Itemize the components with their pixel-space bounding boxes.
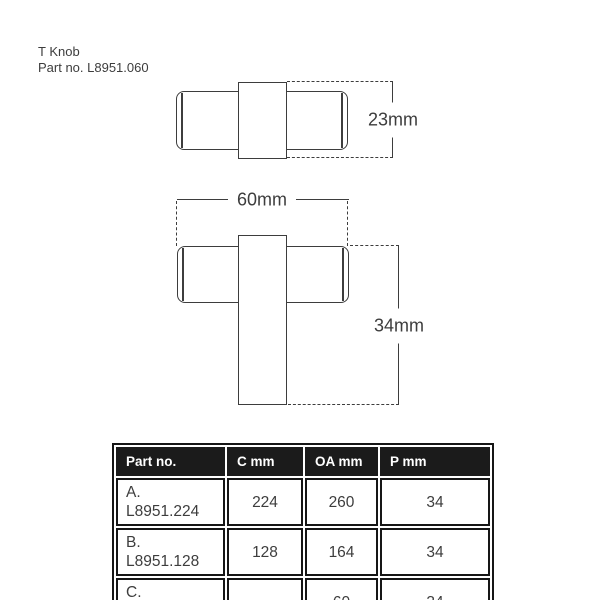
cell-part-no: C. L8951.060 bbox=[116, 578, 225, 600]
cell-part-no: B. L8951.128 bbox=[116, 528, 225, 576]
cell-oa-mm: 260 bbox=[305, 478, 378, 526]
col-header-c-mm: C mm bbox=[227, 447, 303, 476]
col-header-part-no: Part no. bbox=[116, 447, 225, 476]
cell-oa-mm: 164 bbox=[305, 528, 378, 576]
cell-p-mm: 34 bbox=[380, 478, 490, 526]
cell-part-no: A. L8951.224 bbox=[116, 478, 225, 526]
table-header-row: Part no. C mm OA mm P mm bbox=[116, 447, 490, 476]
product-title: T Knob bbox=[38, 44, 149, 60]
cell-c-mm: - bbox=[227, 578, 303, 600]
knob-post-front-view bbox=[238, 235, 287, 405]
col-header-oa-mm: OA mm bbox=[305, 447, 378, 476]
table-row: B. L8951.128 128 164 34 bbox=[116, 528, 490, 576]
knob-post-top-view bbox=[238, 82, 287, 159]
cell-p-mm: 34 bbox=[380, 578, 490, 600]
dimension-label-23mm: 23mm bbox=[366, 103, 420, 138]
spec-table-section: Part no. C mm OA mm P mm A. L8951.224 22… bbox=[112, 443, 494, 600]
dimension-label-34mm: 34mm bbox=[372, 309, 426, 344]
bar-endcap-line-left bbox=[182, 248, 184, 301]
cell-c-mm: 128 bbox=[227, 528, 303, 576]
table-row: A. L8951.224 224 260 34 bbox=[116, 478, 490, 526]
bar-endcap-line-right bbox=[342, 248, 344, 301]
extension-line-bottom bbox=[287, 157, 393, 158]
extension-line-left bbox=[176, 201, 177, 246]
bar-endcap-line-right bbox=[341, 93, 343, 148]
extension-line-projection-top bbox=[350, 245, 399, 246]
dimension-label-60mm: 60mm bbox=[228, 190, 296, 211]
title-block: T Knob Part no. L8951.060 bbox=[38, 44, 149, 76]
cell-c-mm: 224 bbox=[227, 478, 303, 526]
spec-table: Part no. C mm OA mm P mm A. L8951.224 22… bbox=[112, 443, 494, 600]
table-row: C. L8951.060 - 60 34 bbox=[116, 578, 490, 600]
part-number: Part no. L8951.060 bbox=[38, 60, 149, 76]
spec-sheet-page: T Knob Part no. L8951.060 23mm 60mm bbox=[0, 0, 600, 600]
extension-line-top bbox=[287, 81, 393, 82]
cell-oa-mm: 60 bbox=[305, 578, 378, 600]
col-header-p-mm: P mm bbox=[380, 447, 490, 476]
cell-p-mm: 34 bbox=[380, 528, 490, 576]
extension-line-projection-bottom bbox=[288, 404, 399, 405]
extension-line-right bbox=[347, 201, 348, 246]
bar-endcap-line-left bbox=[181, 93, 183, 148]
